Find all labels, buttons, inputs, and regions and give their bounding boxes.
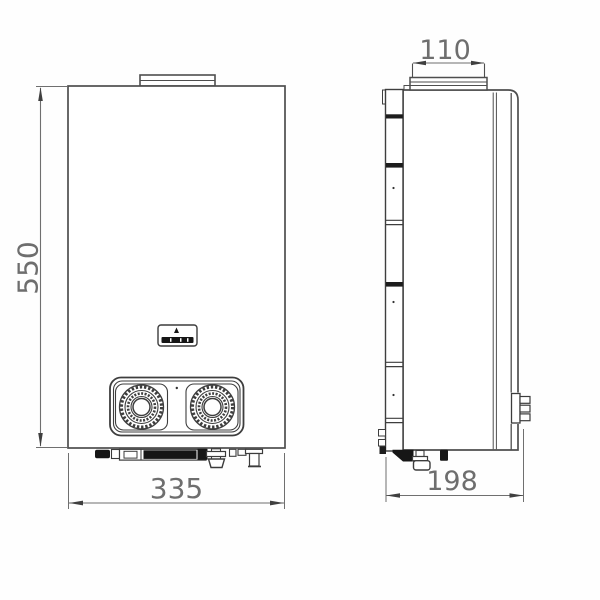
arrowhead-right [510,493,524,498]
water-pipe-stub [246,449,263,466]
valve-silhouette [393,450,414,462]
dimension-flue-width-label: 110 [419,35,471,66]
arrowhead-down [38,433,43,447]
flue-collar-front [140,75,215,86]
arrowhead-right [471,61,485,66]
bottom-connections-front [95,449,263,468]
dimension-depth-label: 198 [426,466,478,497]
control-panel [110,378,244,436]
arrowhead-right [270,501,284,506]
flue-collar-side [410,64,487,91]
dimension-height: 550 [12,87,68,448]
technical-drawing-svg: 550 335 [0,0,600,600]
screw-hole [392,394,394,396]
dimension-height-label: 550 [12,241,45,294]
connector-block [509,393,531,425]
arrowhead-left [386,493,400,498]
arrowhead-up [38,87,43,101]
screw-hole [392,187,394,189]
gas-valve-cap [209,459,225,468]
unit-body-side [403,86,518,451]
side-view: 110 198 [379,35,531,502]
front-view: 550 335 [12,75,286,509]
dimension-width-label: 335 [150,472,203,505]
arrowhead-left [69,501,83,506]
display-window [158,325,197,346]
wall-mount-rail [379,90,404,455]
dimension-drawing-canvas: 550 335 [0,0,600,600]
dimension-flue-width: 110 [413,35,485,66]
screw-hole [392,301,394,303]
